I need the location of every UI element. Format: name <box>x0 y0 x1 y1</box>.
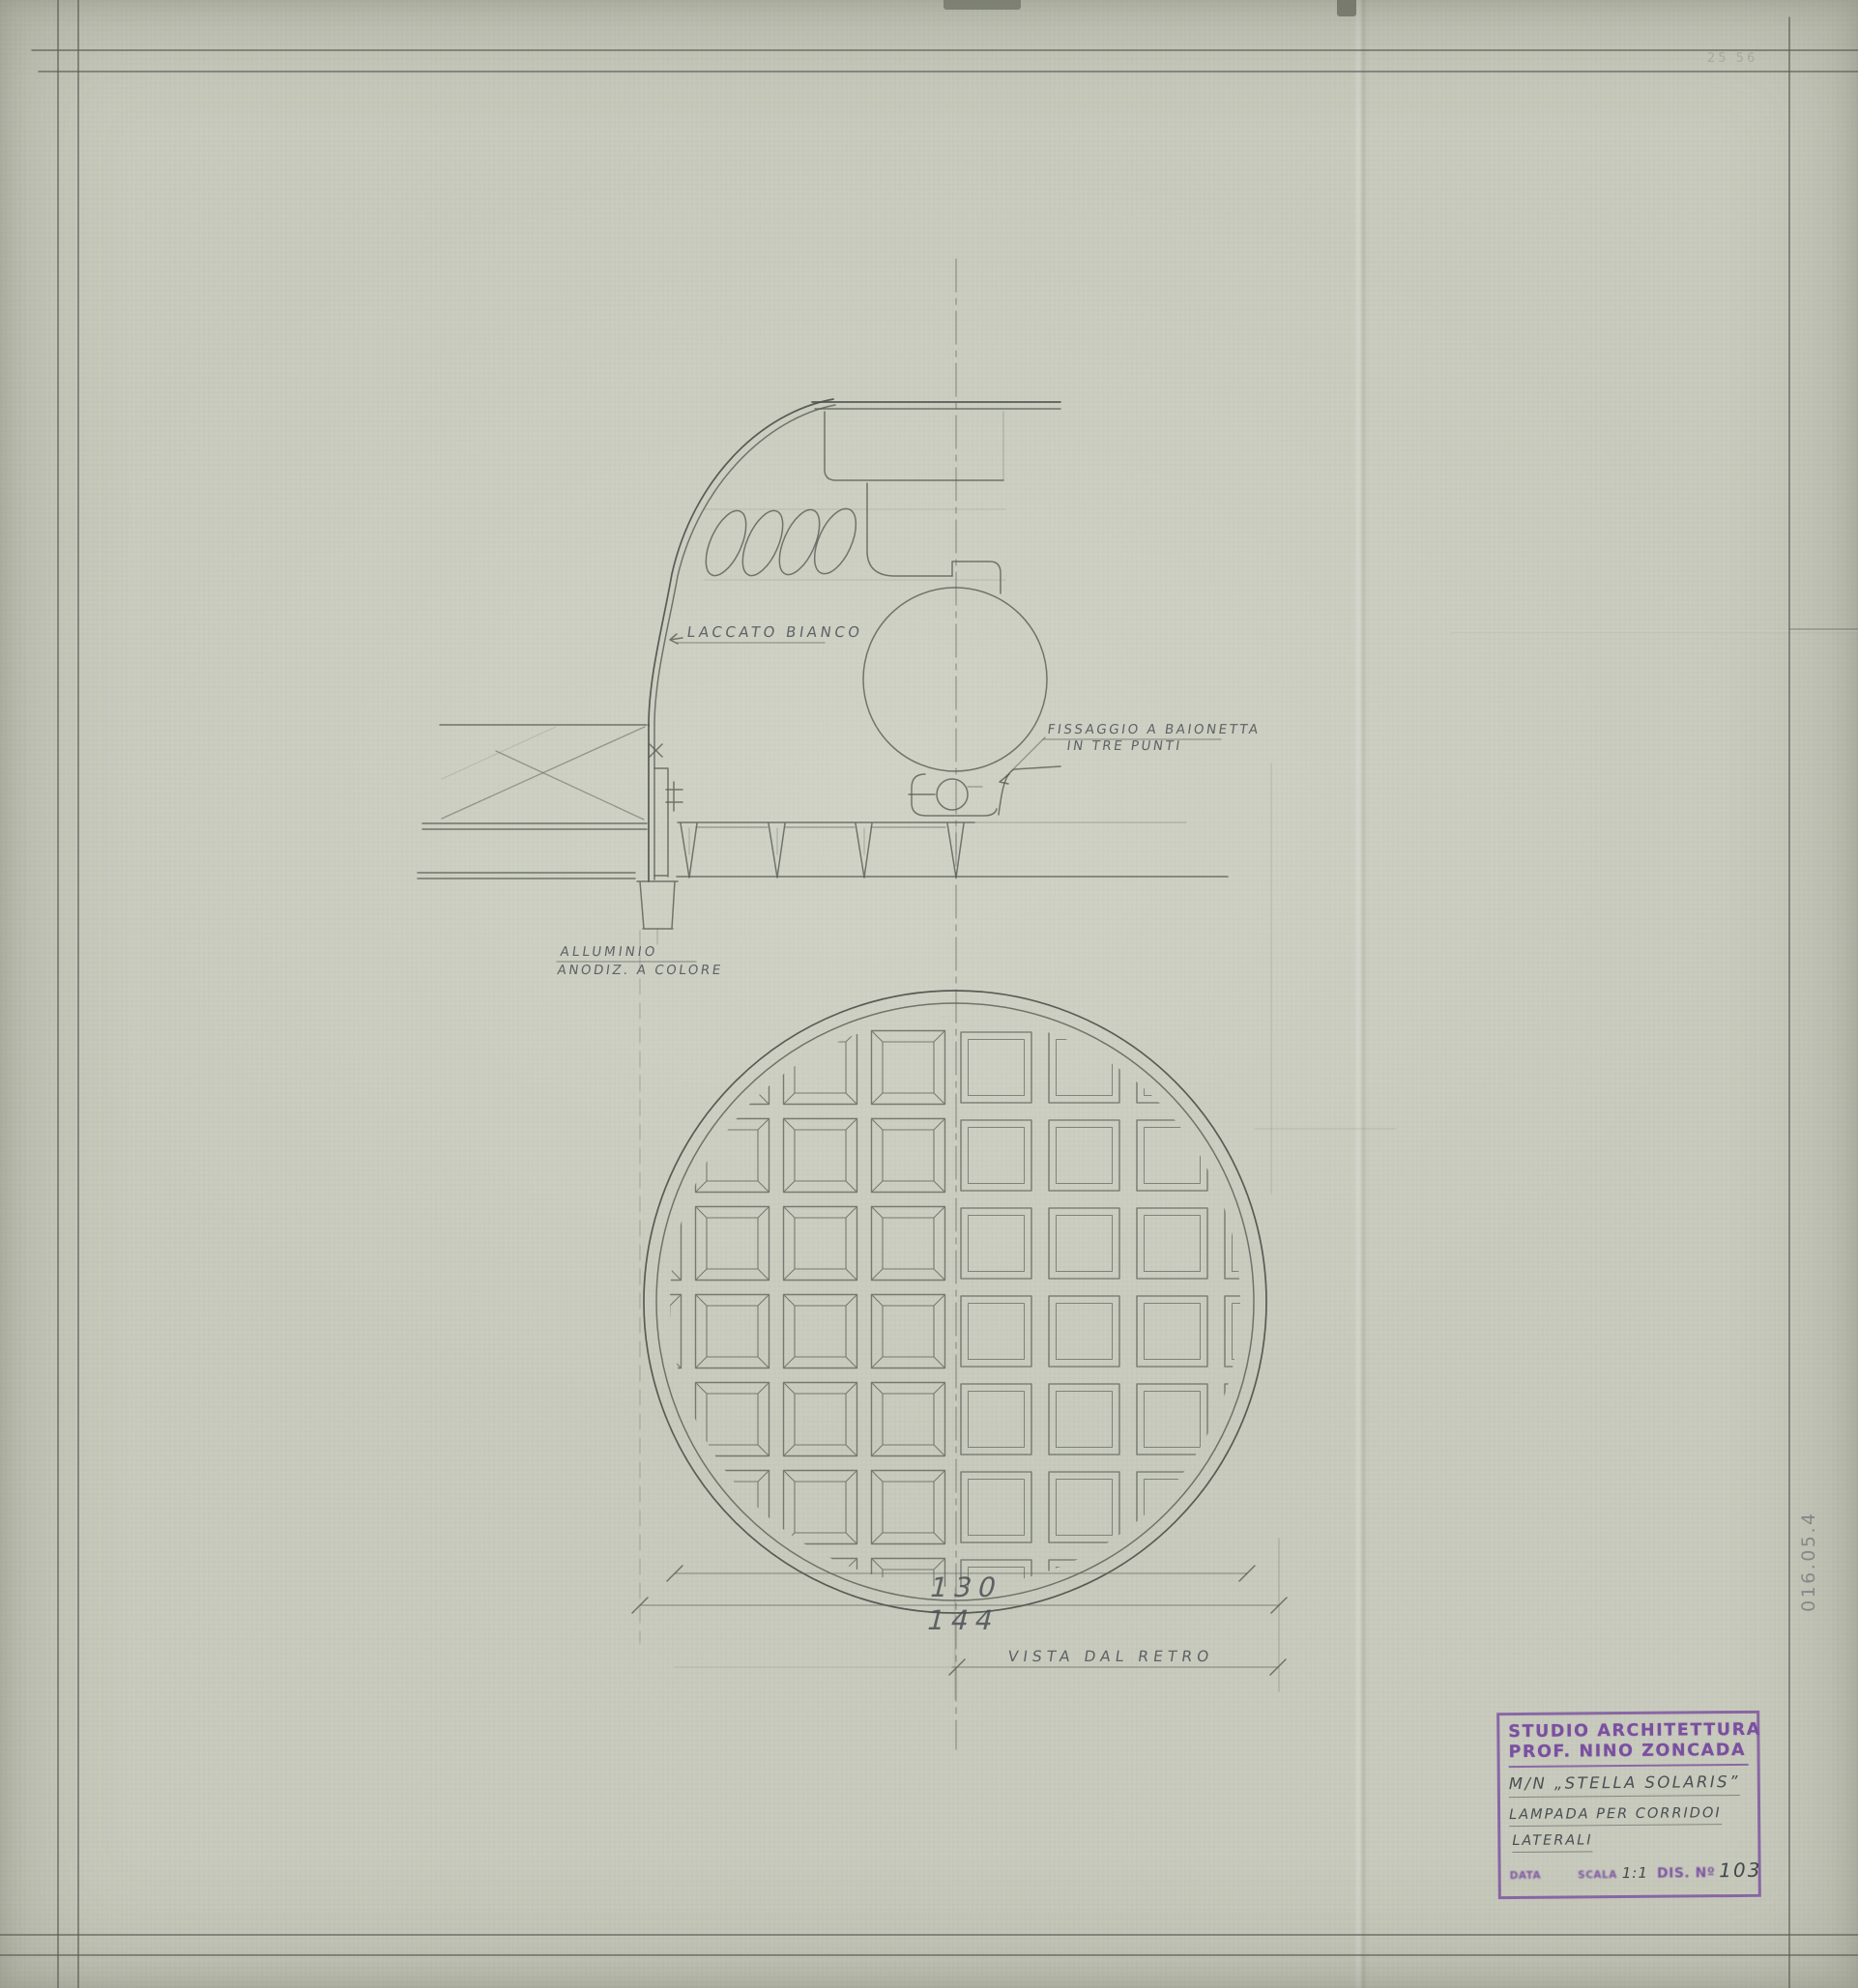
note-alluminio-line2: ANODIZ. A COLORE <box>556 963 723 978</box>
studio-stamp: STUDIO ARCHITETTURA PROF. NINO ZONCADA <box>1508 1720 1748 1768</box>
archive-number: 016.05.4 <box>1798 1511 1819 1612</box>
grid-right-half <box>955 1017 1240 1587</box>
scala-value: 1:1 <box>1622 1864 1648 1882</box>
drawing-subject-line2: LATERALI <box>1512 1832 1592 1853</box>
dimension-144: 144 <box>923 1604 1003 1635</box>
scala-label: SCALA <box>1578 1869 1617 1881</box>
note-laccato-bianco: LACCATO BIANCO <box>685 623 863 641</box>
back-view <box>644 991 1266 1613</box>
drawing-subject-line1: LAMPADA PER CORRIDOI <box>1509 1805 1722 1827</box>
dimension-130: 130 <box>926 1571 1006 1602</box>
title-block: STUDIO ARCHITETTURA PROF. NINO ZONCADA M… <box>1496 1711 1761 1899</box>
technical-drawing-canvas: LACCATO BIANCO FISSAGGIO A BAIONETTA IN … <box>0 0 1858 1988</box>
data-label: DATA <box>1510 1870 1542 1882</box>
note-fissaggio-line1: FISSAGGIO A BAIONETTA <box>1046 722 1261 737</box>
faint-top-note: 25 56 <box>1707 51 1757 66</box>
drawing-sheet: LACCATO BIANCO FISSAGGIO A BAIONETTA IN … <box>0 0 1858 1988</box>
note-alluminio-line1: ALLUMINIO <box>559 944 658 960</box>
title-block-footer: DATA SCALA 1:1 DIS. Nº 103 <box>1509 1858 1749 1884</box>
dis-number-label: DIS. Nº <box>1657 1865 1715 1882</box>
note-vista-dal-retro: VISTA DAL RETRO <box>1006 1648 1214 1665</box>
grid-left-half <box>670 1017 955 1587</box>
vessel-name: M/N „STELLA SOLARIS” <box>1509 1772 1740 1798</box>
studio-name-line1: STUDIO ARCHITETTURA <box>1508 1720 1748 1743</box>
section-view <box>418 399 1228 944</box>
note-fissaggio-line2: IN TRE PUNTI <box>1065 738 1182 754</box>
studio-name-line2: PROF. NINO ZONCADA <box>1508 1741 1748 1763</box>
frame-border <box>0 0 1858 1988</box>
dis-number-value: 103 <box>1719 1858 1761 1882</box>
